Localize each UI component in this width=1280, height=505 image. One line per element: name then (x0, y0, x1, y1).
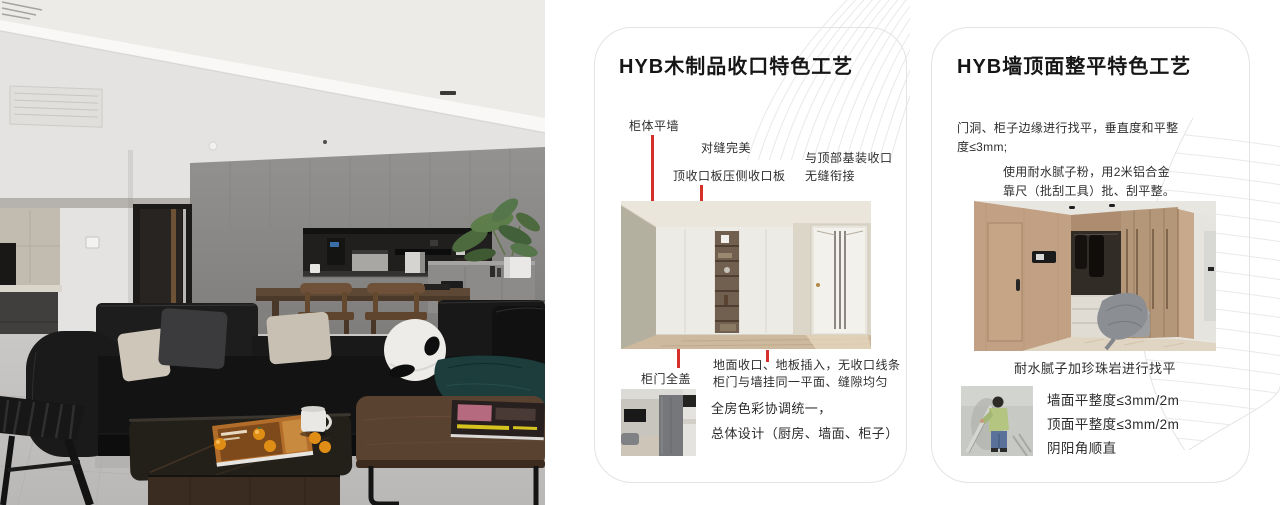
photo-caption: 耐水腻子加珍珠岩进行找平 (974, 358, 1216, 377)
paragraph-line: 度≤3mm; (957, 138, 1178, 157)
pillow-black (492, 306, 545, 362)
living-room-photo (0, 0, 545, 505)
label-floor-joint-2: 柜门与墙挂同一平面、缝隙均匀 (713, 373, 888, 390)
card-wall-leveling: HYB墙顶面整平特色工艺 门洞、柜子边缘进行找平，垂直度和平整 度≤3mm; 使… (931, 27, 1250, 483)
coffee-machine (0, 243, 16, 285)
paragraph-line: 门洞、柜子边缘进行找平，垂直度和平整 (957, 119, 1178, 138)
ac-vent-grille (10, 86, 102, 127)
interior-thumbnail (621, 389, 696, 456)
label-top-closing-panel: 顶收口板压侧收口板 (673, 167, 786, 184)
cabinet-render-image (621, 201, 871, 349)
metric-item: 顶面平整度≤3mm/2m (1047, 413, 1179, 437)
label-ceiling-joint-1: 与顶部基装收口 (805, 149, 893, 166)
metrics-list: 墙面平整度≤3mm/2m 顶面平整度≤3mm/2m 阴阳角顺直 (1047, 389, 1179, 461)
summary-line-1: 全房色彩协调统一， (711, 398, 832, 417)
summary-line-2: 总体设计（厨房、墙面、柜子） (711, 423, 899, 442)
promo-canvas: HYB木制品收口特色工艺 柜体平墙 对缝完美 顶收口板压侧收口板 与顶部基装收口… (0, 0, 1280, 505)
door-handle (1016, 279, 1020, 291)
paragraph-line: 使用耐水腻子粉，用2米铝合金 (1003, 163, 1175, 182)
metric-item: 阴阳角顺直 (1047, 437, 1179, 461)
worker-thumbnail (961, 386, 1033, 456)
pillow-gray (158, 308, 228, 369)
hallway-photo (974, 201, 1216, 351)
label-perfect-seam: 对缝完美 (701, 139, 751, 156)
card-wood-trim: HYB木制品收口特色工艺 柜体平墙 对缝完美 顶收口板压侧收口板 与顶部基装收口… (594, 27, 907, 483)
paragraph-line: 靠尺（批刮工具）批、刮平整。 (1003, 182, 1175, 201)
card-title: HYB木制品收口特色工艺 (619, 50, 853, 79)
kitchen-cabinets (0, 208, 62, 350)
label-floor-joint-1: 地面收口、地板插入，无收口线条 (713, 356, 901, 373)
light-switch (86, 237, 99, 248)
paragraph-leveling: 门洞、柜子边缘进行找平，垂直度和平整 度≤3mm; (957, 119, 1178, 157)
metric-item: 墙面平整度≤3mm/2m (1047, 389, 1179, 413)
label-ceiling-joint-2: 无缝衔接 (805, 167, 855, 184)
magazine (451, 400, 545, 440)
label-full-cover-door: 柜门全盖 (641, 370, 691, 387)
pillow-beige (266, 311, 332, 364)
card-title: HYB墙顶面整平特色工艺 (957, 50, 1191, 79)
label-cabinet-flush-wall: 柜体平墙 (629, 117, 679, 134)
paragraph-putty: 使用耐水腻子粉，用2米铝合金 靠尺（批刮工具）批、刮平整。 (1003, 163, 1175, 201)
